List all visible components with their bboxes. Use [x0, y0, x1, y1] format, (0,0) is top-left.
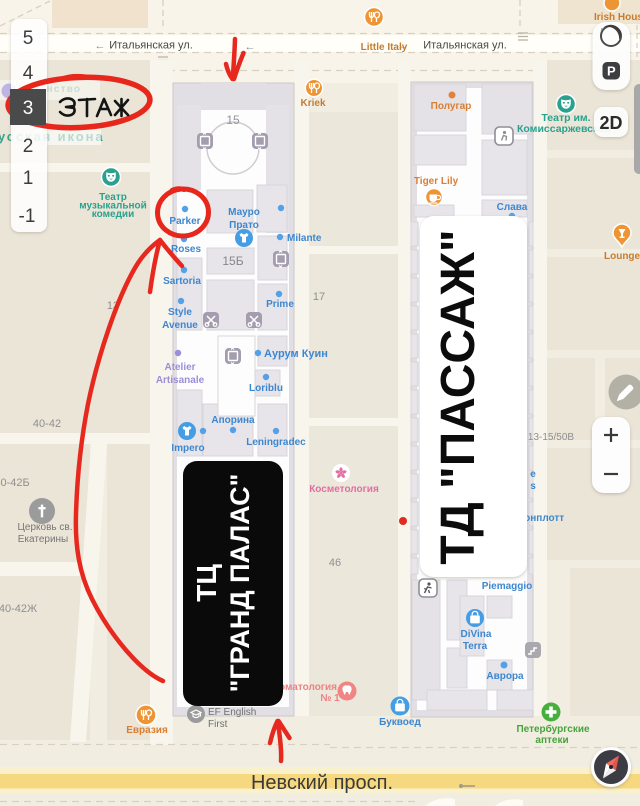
- svg-text:40-42Ж: 40-42Ж: [0, 603, 37, 615]
- svg-text:ТД "ПАССАЖ": ТД "ПАССАЖ": [432, 229, 485, 564]
- svg-text:Terra: Terra: [463, 641, 488, 652]
- svg-text:Impero: Impero: [171, 443, 204, 454]
- svg-text:Косметология: Косметология: [309, 484, 379, 495]
- svg-text:Kriek: Kriek: [300, 98, 325, 109]
- svg-text:-1: -1: [19, 206, 36, 227]
- svg-text:Прато: Прато: [229, 220, 259, 231]
- svg-text:Итальянская ул.: Итальянская ул.: [109, 40, 193, 52]
- svg-text:s: s: [530, 481, 536, 492]
- svg-text:13-15/50В: 13-15/50В: [528, 432, 574, 443]
- svg-text:Петербургские: Петербургские: [516, 723, 590, 735]
- svg-text:Milante: Milante: [287, 233, 322, 244]
- svg-text:5: 5: [23, 28, 34, 49]
- svg-text:Avenue: Avenue: [162, 320, 198, 331]
- svg-text:е: е: [530, 469, 536, 480]
- svg-text:Апорина: Апорина: [211, 415, 255, 426]
- svg-text:Буквоед: Буквоед: [379, 717, 421, 728]
- svg-text:2: 2: [23, 136, 34, 157]
- svg-text:40-42Б: 40-42Б: [0, 477, 30, 489]
- svg-text:Церковь св.: Церковь св.: [18, 522, 73, 533]
- svg-text:Sartoria: Sartoria: [163, 276, 201, 287]
- svg-text:ТЦ: ТЦ: [191, 564, 222, 602]
- svg-text:Tiger Lily: Tiger Lily: [414, 176, 459, 187]
- svg-text:←: ←: [95, 40, 106, 52]
- svg-text:Prime: Prime: [266, 299, 294, 310]
- svg-text:Leningradec: Leningradec: [246, 437, 306, 448]
- svg-text:Piemaggio: Piemaggio: [482, 581, 533, 592]
- svg-text:Мауро: Мауро: [228, 207, 260, 218]
- svg-text:аптеки: аптеки: [535, 735, 568, 746]
- svg-text:Irish House: Irish House: [594, 12, 640, 23]
- svg-text:Аурум Куин: Аурум Куин: [264, 348, 328, 360]
- svg-text:Parker: Parker: [169, 216, 200, 227]
- svg-text:Екатерины: Екатерины: [18, 534, 69, 545]
- svg-text:оматология: оматология: [279, 682, 337, 693]
- svg-text:Аврора: Аврора: [486, 671, 524, 682]
- svg-text:First: First: [208, 719, 228, 730]
- svg-text:2D: 2D: [599, 113, 622, 133]
- svg-text:Roses: Roses: [171, 244, 201, 255]
- svg-text:3: 3: [23, 98, 34, 119]
- svg-text:Итальянская ул.: Итальянская ул.: [423, 40, 507, 52]
- svg-text:"ГРАНД ПАЛАС": "ГРАНД ПАЛАС": [225, 474, 255, 693]
- svg-text:EF English: EF English: [208, 707, 256, 718]
- svg-text:46: 46: [329, 557, 341, 569]
- svg-text:←: ←: [245, 41, 256, 53]
- svg-text:4: 4: [23, 63, 34, 84]
- svg-text:1: 1: [23, 168, 34, 189]
- svg-text:№ 1: № 1: [320, 693, 340, 704]
- svg-text:Loriblu: Loriblu: [249, 383, 283, 394]
- svg-text:Artisanale: Artisanale: [156, 375, 205, 386]
- svg-text:Little Italy: Little Italy: [361, 42, 408, 53]
- svg-text:комедии: комедии: [92, 209, 134, 220]
- svg-text:40-42: 40-42: [33, 418, 61, 430]
- svg-text:15Б: 15Б: [222, 254, 243, 268]
- svg-text:Atelier: Atelier: [164, 362, 195, 373]
- svg-text:Полугар: Полугар: [431, 101, 472, 112]
- svg-text:17: 17: [313, 291, 325, 303]
- svg-text:DiVina: DiVina: [461, 629, 492, 640]
- svg-text:Style: Style: [168, 307, 192, 318]
- svg-text:Слава: Слава: [497, 202, 528, 213]
- svg-text:LoungeR: LoungeR: [604, 251, 640, 262]
- svg-text:Евразия: Евразия: [126, 725, 168, 736]
- svg-text:Невский просп.: Невский просп.: [251, 772, 393, 794]
- svg-text:15: 15: [226, 113, 240, 127]
- svg-text:P: P: [607, 64, 616, 79]
